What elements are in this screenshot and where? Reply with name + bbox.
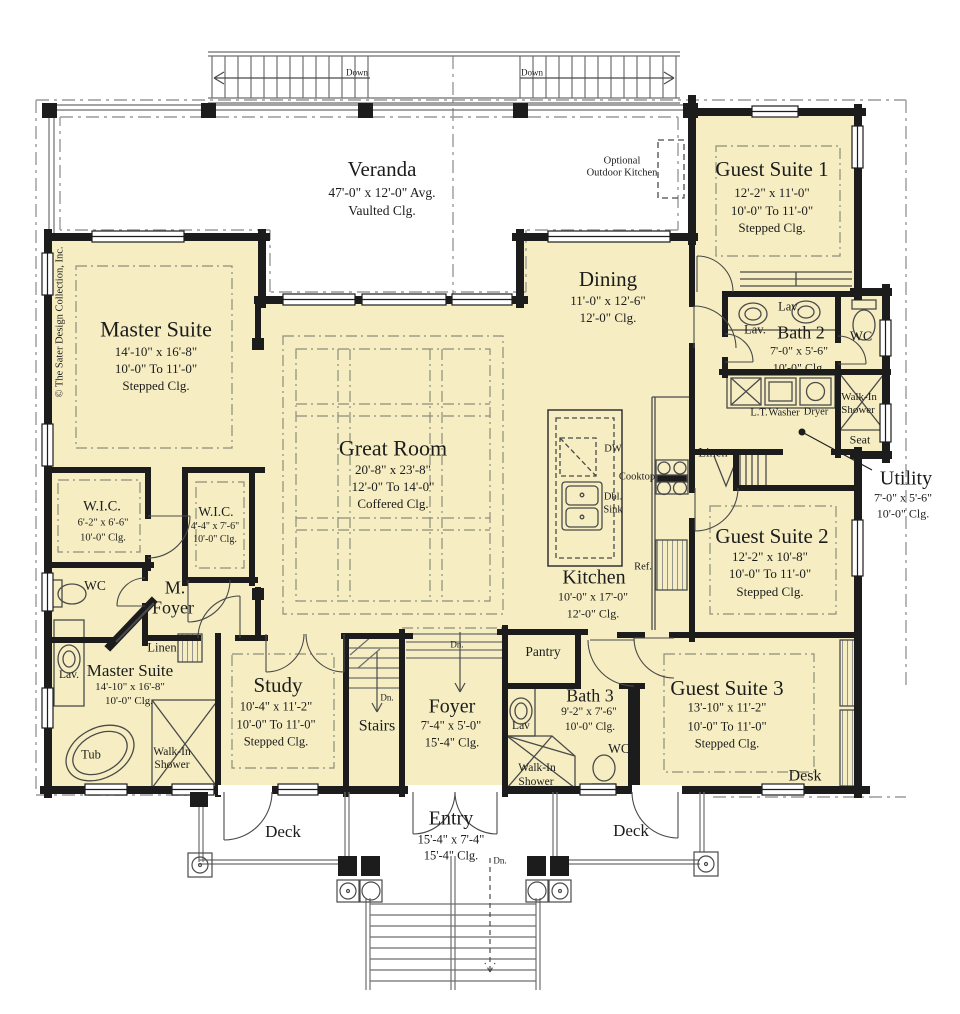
optional-outdoor-kitchen-label-2: Outdoor Kitchen (587, 167, 658, 178)
great-room-dim: 20'-8" x 23'-8" (355, 463, 431, 477)
master-suite-clg2: Stepped Clg. (122, 379, 189, 393)
bath-2-clg: 10'-0" Clg. (773, 362, 825, 375)
window (852, 126, 863, 168)
study-label: Study (253, 674, 302, 696)
window (42, 424, 53, 466)
master-suite-dim: 14'-10" x 16'-8" (115, 345, 197, 359)
wc-label-guest: WC (850, 331, 873, 346)
guest-suite-1-dim: 12'-2" x 11'-0" (734, 186, 809, 200)
window (85, 784, 127, 795)
utility-clg: 10'-0" Clg. (877, 508, 929, 521)
master-suite-label: Master Suite (100, 317, 212, 340)
laundry-tub-label: L.T. (750, 407, 767, 418)
veranda-label: Veranda (348, 158, 417, 180)
dryer-label: Dryer (804, 406, 829, 417)
bath3-shower-label-2: Shower (518, 776, 553, 788)
study-clg1: 10'-0" To 11'-0" (236, 718, 315, 731)
down-label-right: Down (521, 68, 543, 77)
dn-label-entry: Dn. (493, 856, 506, 865)
foyer-dim: 7'-4" x 5'-0" (421, 719, 482, 732)
down-label-left: Down (346, 68, 368, 77)
tub-label: Tub (81, 748, 101, 761)
window (852, 520, 863, 576)
foyer-clg: 15'-4" Clg. (425, 736, 480, 749)
bath-3-clg: 10'-0" Clg. (565, 721, 615, 733)
desk-label: Desk (789, 769, 822, 786)
window (278, 784, 318, 795)
study-dim: 10'-4" x 11'-2" (240, 700, 313, 713)
window (42, 688, 53, 728)
guest-suite-3-clg1: 10'-0" To 11'-0" (687, 720, 766, 733)
dining-dim: 11'-0" x 12'-6" (570, 294, 645, 308)
great-room-clg1: 12'-0" To 14'-0" (352, 480, 435, 494)
guest-suite-2-clg1: 10'-0" To 11'-0" (729, 567, 811, 581)
bath2-lav-label-2: Lav. (778, 300, 800, 313)
bath-2-dim: 7'-0" x 5'-6" (770, 345, 828, 358)
guest-suite-2-dim: 12'-2" x 10'-8" (732, 550, 808, 564)
kitchen-label: Kitchen (562, 568, 625, 589)
window (548, 231, 670, 242)
master-suite-clg1: 10'-0" To 11'-0" (115, 362, 197, 376)
cooktop-label: Cooktop (619, 471, 655, 482)
refrigerator-icon (656, 540, 687, 590)
master-shower-label-1: Walk-In (153, 746, 190, 758)
window (880, 320, 891, 356)
m-foyer-label-2: Foyer (152, 599, 194, 618)
guest-shower-label-1: Walk-In (841, 392, 877, 404)
wall-block (628, 686, 640, 790)
utility-label: Utility (880, 469, 932, 490)
window (452, 294, 512, 305)
window (42, 573, 53, 611)
bath3-shower-label-1: Walk-In (518, 762, 555, 774)
washer-label: Washer (768, 407, 799, 418)
guest-suite-3-label: Guest Suite 3 (670, 677, 783, 699)
kitchen-dim: 10'-0" x 17'-0" (558, 591, 628, 604)
window (362, 294, 446, 305)
wc-label-master: WC (84, 579, 106, 593)
wic-2-dim: 4'-4" x 7'-6" (191, 522, 239, 533)
guest-suite-3-dim: 13'-10" x 11'-2" (688, 701, 767, 714)
closet (840, 710, 856, 786)
dining-clg: 12'-0" Clg. (580, 311, 637, 325)
dining-label: Dining (579, 268, 637, 290)
dn-label-foyer: Dn. (450, 640, 463, 649)
window (42, 253, 53, 295)
dbl-sink-label-1: Dbl. (604, 491, 622, 502)
guest-suite-2-label: Guest Suite 2 (715, 525, 828, 547)
wic-1-clg: 10'-0" Clg. (80, 532, 126, 543)
great-room-label: Great Room (339, 436, 447, 459)
bath2-lav-label: Lav. (744, 323, 766, 336)
wic-2-clg: 10'-0" Clg. (193, 535, 237, 546)
linen-label-right: Linen (698, 446, 727, 459)
pantry-label: Pantry (525, 645, 560, 659)
stairs-label: Stairs (359, 719, 395, 736)
great-room-clg2: Coffered Clg. (357, 497, 428, 511)
guest-suite-1-label: Guest Suite 1 (715, 158, 828, 180)
window (92, 231, 184, 242)
window (880, 404, 891, 442)
bath-2-label: Bath 2 (777, 324, 825, 343)
wic-2-label: W.I.C. (198, 505, 233, 519)
upper-deck-stairs (208, 52, 680, 103)
closet (840, 640, 856, 706)
m-foyer-label-1: M. (165, 579, 186, 598)
dn-label-stairs: Dn. (380, 693, 393, 702)
entry-steps (370, 904, 536, 981)
optional-outdoor-kitchen-box (658, 140, 684, 198)
utility-dim: 7'-0" x 5'-6" (874, 492, 932, 505)
guest-suite-1-clg1: 10'-0" To 11'-0" (731, 204, 813, 218)
master-bath-dim: 14'-10" x 16'-8" (95, 682, 165, 694)
dbl-sink-label-2: Sink (603, 504, 622, 515)
guest-suite-2-clg2: Stepped Clg. (736, 585, 803, 599)
floor-plan: Veranda 47'-0" x 12'-0" Avg. Vaulted Clg… (0, 0, 960, 1014)
master-shower-label-2: Shower (154, 759, 189, 771)
window (283, 294, 355, 305)
bath-3-label: Bath 3 (566, 687, 614, 706)
foyer-label: Foyer (429, 697, 476, 718)
lav-label-bath3: Lav (512, 720, 530, 732)
veranda-clg: Vaulted Clg. (348, 204, 416, 218)
guest-suite-3-clg2: Stepped Clg. (695, 737, 760, 750)
lav-label-master: Lav. (59, 669, 79, 681)
bath-3-dim: 9'-2" x 7'-6" (561, 706, 617, 718)
master-bath-clg: 10'-0" Clg. (105, 696, 153, 708)
seat-label: Seat (850, 434, 871, 447)
ref-label: Ref. (634, 561, 652, 572)
floor-plan-drawing (0, 0, 960, 1014)
master-bath-label: Master Suite (87, 662, 173, 680)
dw-label: DW (604, 443, 622, 454)
window (580, 784, 616, 795)
entry-label: Entry (429, 809, 473, 830)
guest-suite-1-clg2: Stepped Clg. (738, 221, 805, 235)
window (752, 106, 798, 117)
wc-label-bath3: WC (608, 742, 630, 756)
entry-clg: 15'-4" Clg. (424, 849, 479, 862)
deck-label-right: Deck (613, 822, 649, 840)
copyright-text: © The Sater Design Collection, Inc. (54, 247, 65, 398)
guest-shower-label-2: Shower (841, 405, 875, 417)
wic-1-label: W.I.C. (83, 499, 121, 514)
veranda-dim: 47'-0" x 12'-0" Avg. (328, 186, 435, 200)
optional-outdoor-kitchen-label: Optional (604, 155, 641, 166)
linen-label-master: Linen (147, 641, 176, 654)
deck-label-left: Deck (265, 823, 301, 841)
entry-dim: 15'-4" x 7'-4" (418, 833, 485, 846)
wic-1-dim: 6'-2" x 6'-6" (78, 517, 129, 528)
window (762, 784, 804, 795)
study-clg2: Stepped Clg. (244, 735, 309, 748)
kitchen-clg: 12'-0" Clg. (567, 608, 619, 621)
